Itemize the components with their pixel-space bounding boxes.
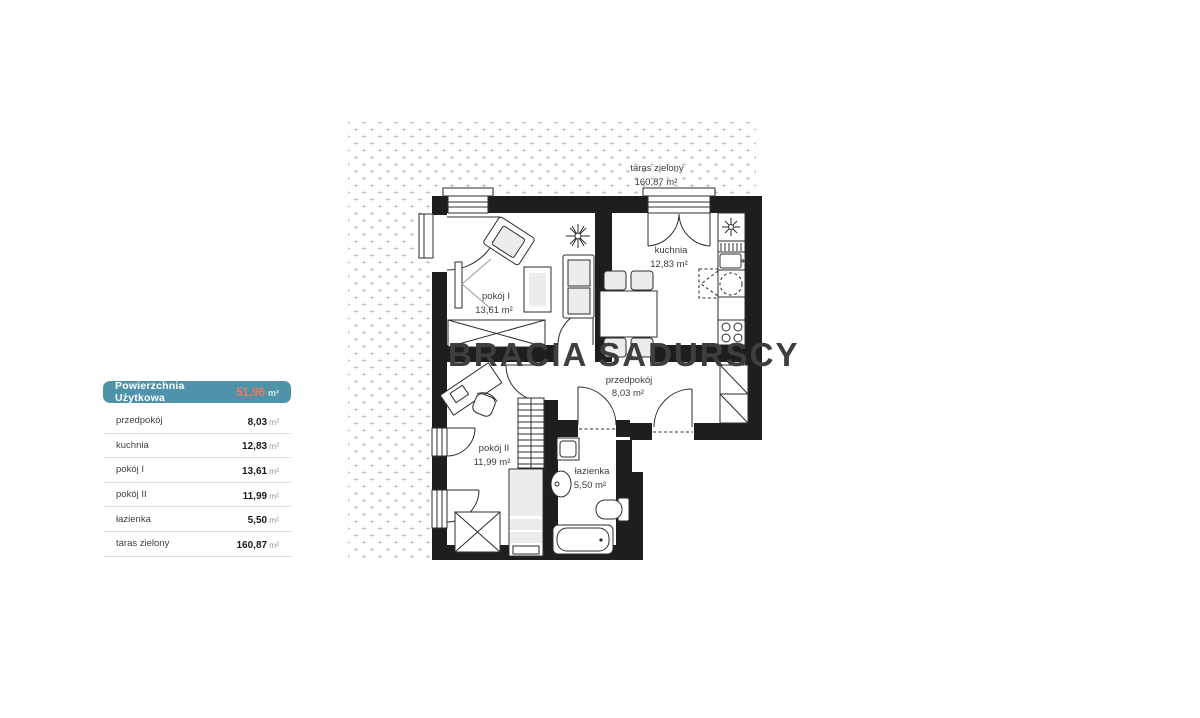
- dresser-x: [455, 512, 500, 552]
- chair: [631, 271, 653, 290]
- room-name: pokój II: [116, 489, 147, 500]
- legend-row: pokój I 13,61m²: [103, 458, 291, 483]
- svg-text:przedpokój: przedpokój: [606, 375, 652, 386]
- legend-header-value: 51,96m²: [236, 383, 279, 401]
- room-label-kuchnia: kuchnia 12,83 m²: [650, 245, 688, 270]
- balcony-door: [643, 188, 715, 246]
- legend-row: kuchnia 12,83m²: [103, 434, 291, 459]
- room-area: 13,61m²: [242, 461, 279, 479]
- legend-row: łazienka 5,50m²: [103, 507, 291, 532]
- room-name: przedpokój: [116, 415, 162, 426]
- bathtub: [553, 525, 613, 554]
- living-room-furniture: [448, 216, 594, 347]
- ceiling-light-icon: [566, 224, 590, 248]
- room-name: taras zielony: [116, 538, 169, 549]
- door: [578, 387, 616, 429]
- svg-text:taras zielony: taras zielony: [630, 163, 684, 174]
- legend-header-label: Powierzchnia Użytkowa: [115, 380, 236, 404]
- room-name: kuchnia: [116, 440, 149, 451]
- window: [432, 428, 475, 456]
- room-label-przedpokoj: przedpokój 8,03 m²: [606, 375, 652, 399]
- sofa: [563, 255, 594, 318]
- entrance-door: [652, 389, 694, 440]
- legend-row: przedpokój 8,03m²: [103, 409, 291, 434]
- svg-text:5,50 m²: 5,50 m²: [574, 480, 606, 491]
- room-label-lazienka: łazienka 5,50 m²: [574, 466, 610, 491]
- chair: [604, 271, 626, 290]
- room-area: 160,87m²: [236, 535, 279, 553]
- svg-text:łazienka: łazienka: [575, 466, 611, 477]
- coffee-table: [524, 267, 551, 312]
- legend-header: Powierzchnia Użytkowa 51,96m²: [103, 381, 291, 403]
- svg-text:8,03 m²: 8,03 m²: [612, 388, 644, 399]
- washing-machine: [557, 438, 579, 460]
- svg-text:12,83 m²: 12,83 m²: [650, 259, 688, 270]
- room-name: łazienka: [116, 514, 151, 525]
- room-area: 11,99m²: [243, 486, 279, 504]
- toilet: [596, 498, 629, 521]
- bathroom-sink: [551, 471, 571, 497]
- room-name: pokój I: [116, 464, 144, 475]
- room-label-pokoj1: pokój I 13,61 m²: [475, 291, 513, 316]
- closet-hatched: [518, 398, 544, 468]
- room-label-pokoj2: pokój II 11,99 m²: [474, 443, 511, 468]
- svg-text:pokój I: pokój I: [482, 291, 510, 302]
- room-area: 5,50m²: [248, 510, 279, 528]
- area-legend-panel: Powierzchnia Użytkowa 51,96m² przedpokój…: [103, 381, 291, 557]
- kitchen-counter: [699, 213, 745, 345]
- svg-text:kuchnia: kuchnia: [655, 245, 688, 256]
- svg-text:pokój II: pokój II: [479, 443, 510, 454]
- legend-row: pokój II 11,99m²: [103, 483, 291, 508]
- window: [443, 188, 493, 213]
- legend-rows: przedpokój 8,03m² kuchnia 12,83m² pokój …: [103, 409, 291, 557]
- bed: [509, 469, 543, 556]
- armchair: [483, 216, 536, 266]
- svg-text:11,99 m²: 11,99 m²: [474, 457, 511, 468]
- room-area: 12,83m²: [242, 436, 279, 454]
- kitchen-table: [600, 291, 657, 337]
- room-area: 8,03m²: [248, 412, 279, 430]
- agency-watermark: BRACIA SADURSCY: [448, 336, 758, 374]
- svg-text:160,87 m²: 160,87 m²: [635, 177, 678, 188]
- svg-text:13,61 m²: 13,61 m²: [475, 305, 513, 316]
- legend-row: taras zielony 160,87m²: [103, 532, 291, 557]
